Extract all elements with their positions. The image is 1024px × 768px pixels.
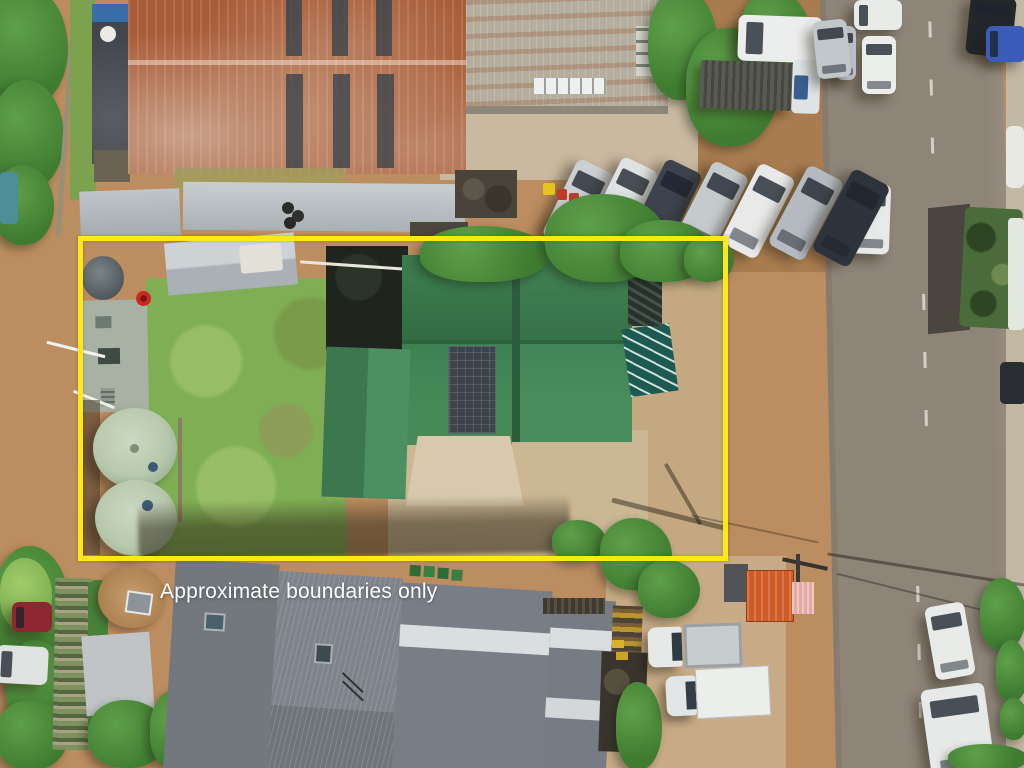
roof-window [314,643,333,664]
rusty-roof-ridge [128,60,466,65]
roof-skylight [376,0,392,56]
parked-car-red [12,602,52,632]
boundary-disclaimer-text: Approximate boundaries only [160,580,437,604]
white-van [737,15,823,64]
pink-panel [792,582,814,614]
warehouse-eave-shadow [466,106,668,114]
parked-car [862,36,896,94]
yellow-drum [543,183,555,195]
white-ute [647,620,745,671]
ute-windshield [672,632,683,660]
power-pole [796,554,800,582]
bush [948,744,1024,768]
machinery-junk [455,170,517,218]
flatbed-truck [699,56,821,116]
yard-junk [94,150,130,182]
roof-skylight [332,0,348,56]
parked-car-partial [1006,126,1024,188]
bush [980,578,1024,650]
bush [616,682,662,768]
power-pole-crossarm [782,557,828,570]
parked-car-blue [986,26,1024,62]
bush [996,640,1024,702]
satellite-dish [100,26,116,42]
roof-skylight [286,0,302,56]
truck-tray [699,60,793,111]
parked-car [1000,362,1024,404]
tyre-stack [282,202,294,214]
roof-window [204,612,226,631]
road [820,0,1018,768]
swimming-pool [0,172,18,224]
grey-roof-section [388,582,552,768]
roof-skylight [333,74,350,168]
roof-skylight-band [549,627,614,651]
bush [1000,698,1024,740]
aerial-photo: Approximate boundaries only [0,0,1024,768]
orange-container [746,570,794,622]
ute-box-body [695,665,772,719]
bush [638,560,700,618]
road-centerline [928,4,934,154]
green-crates [409,565,421,577]
truck-windshield [794,75,809,99]
ute-tray [683,622,743,668]
road-centerline [922,286,928,426]
grey-lean-to [79,188,181,238]
parked-car [854,0,902,30]
parked-car [0,645,49,686]
yellow-stock [612,640,624,648]
roof-skylight [377,74,394,168]
roof-skylight [286,74,303,168]
white-vehicle-partial [1008,218,1024,330]
gazebo-skylight [125,590,154,615]
parked-car [812,18,852,79]
red-drum [557,189,567,200]
skylight-row [534,78,606,94]
blue-tarp [92,4,128,22]
property-boundary-overlay [78,236,728,561]
white-ute [665,665,771,720]
steel-cabinet [724,564,748,602]
dark-grates [543,598,605,614]
